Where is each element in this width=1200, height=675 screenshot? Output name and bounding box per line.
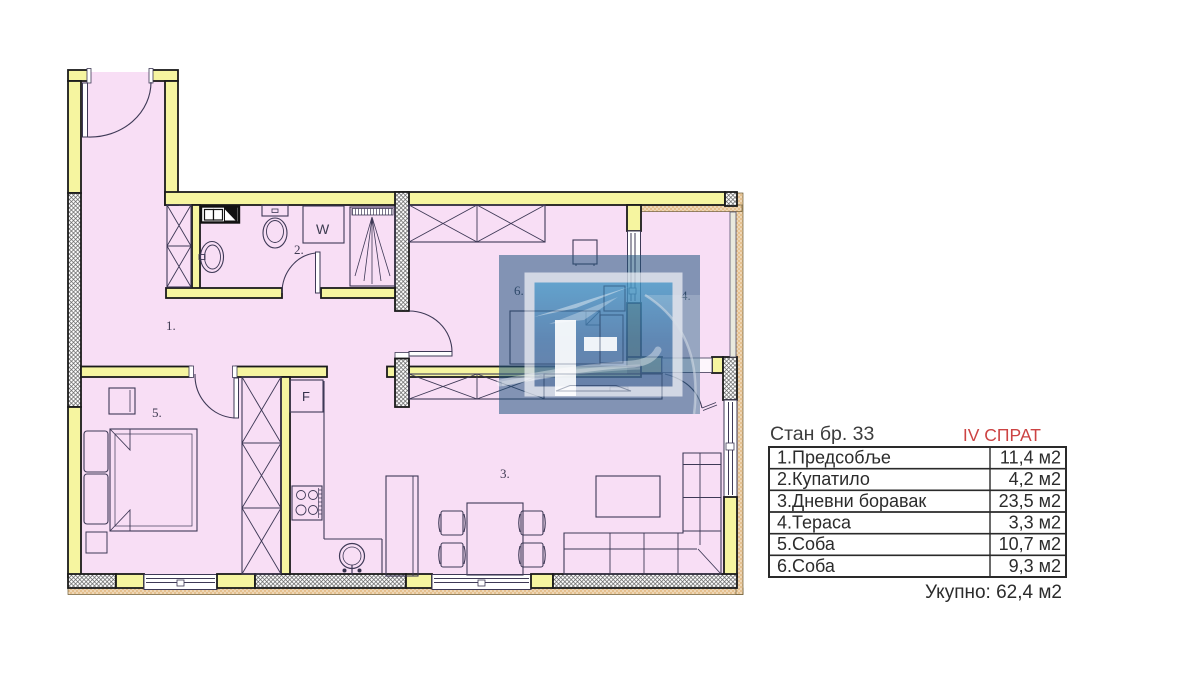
svg-text:4,2 м2: 4,2 м2 xyxy=(1009,469,1061,489)
svg-text:3.: 3. xyxy=(500,466,510,481)
svg-text:10,7 м2: 10,7 м2 xyxy=(999,534,1061,554)
svg-text:6.Соба: 6.Соба xyxy=(777,556,836,576)
svg-text:2.Купатило: 2.Купатило xyxy=(777,469,870,489)
svg-text:Стан бр. 33: Стан бр. 33 xyxy=(770,423,874,445)
svg-text:5.: 5. xyxy=(152,405,162,420)
svg-text:3,3 м2: 3,3 м2 xyxy=(1009,513,1061,533)
svg-text:3.Дневни боравак: 3.Дневни боравак xyxy=(777,491,926,511)
svg-text:1.: 1. xyxy=(166,318,176,333)
svg-text:1.Предсобље: 1.Предсобље xyxy=(777,448,891,468)
svg-text:W: W xyxy=(316,221,330,237)
svg-text:F: F xyxy=(302,389,310,404)
svg-text:Укупно: 62,4 м2: Укупно: 62,4 м2 xyxy=(925,582,1062,603)
svg-text:2.: 2. xyxy=(294,242,304,257)
svg-text:IV СПРАТ: IV СПРАТ xyxy=(963,425,1041,445)
svg-text:11,4 м2: 11,4 м2 xyxy=(1000,448,1061,468)
svg-text:4.Тераса: 4.Тераса xyxy=(777,513,852,533)
svg-text:9,3 м2: 9,3 м2 xyxy=(1009,556,1061,576)
svg-text:23,5 м2: 23,5 м2 xyxy=(999,491,1061,511)
svg-text:5.Соба: 5.Соба xyxy=(777,534,836,554)
